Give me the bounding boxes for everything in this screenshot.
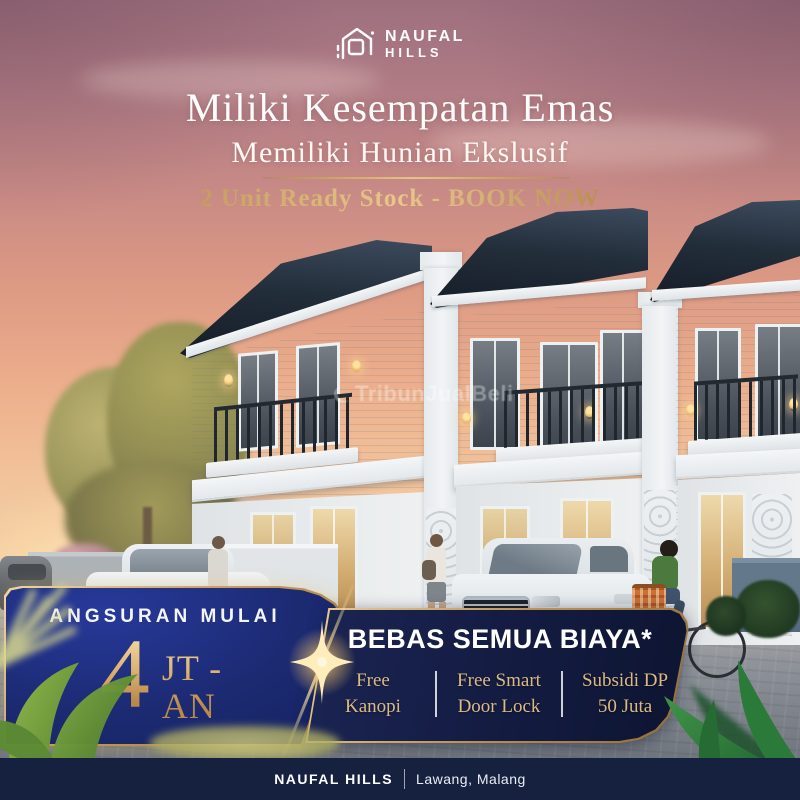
person-head: [212, 536, 225, 549]
house-logo-icon: [335, 24, 375, 64]
poster: TribunJualBeli NAUFAL HILLS Miliki Kesem…: [0, 0, 800, 800]
promo-feature-door-lock: Free Smart Door Lock: [443, 668, 555, 719]
shoulder-bag: [422, 560, 436, 580]
gold-divider-line: [263, 177, 569, 179]
feature-line: Door Lock: [443, 694, 555, 720]
person-body: [208, 549, 228, 589]
brand-name-line1: NAUFAL: [385, 28, 465, 46]
footer-bar: NAUFAL HILLS Lawang, Malang: [0, 758, 800, 800]
blurred-frond: [150, 726, 340, 760]
feature-line: Free Smart: [443, 668, 555, 694]
brand-logo-text: NAUFAL HILLS: [385, 28, 465, 60]
availability-ribbon: 2 Unit Ready Stock - BOOK NOW: [0, 185, 800, 213]
footer-location: Lawang, Malang: [416, 771, 526, 787]
footer-brand: NAUFAL HILLS: [274, 771, 393, 787]
wall-lamp: [352, 360, 361, 373]
brand-logo: NAUFAL HILLS: [0, 24, 800, 64]
person-head: [430, 534, 443, 547]
wall-lamp: [462, 412, 471, 425]
subheadline: Memiliki Hunian Ekslusif: [0, 136, 800, 170]
feature-divider: [561, 671, 563, 717]
photo-watermark: TribunJualBeli: [334, 381, 514, 407]
bush: [706, 596, 746, 636]
suv-headlight: [532, 596, 560, 607]
suv-windshield: [489, 544, 583, 574]
brand-name-line2: HILLS: [385, 46, 465, 60]
watermark-text: TribunJualBeli: [355, 381, 514, 407]
headline: Miliki Kesempatan Emas: [0, 84, 800, 131]
person-shorts: [427, 582, 446, 602]
footer-separator: [404, 769, 405, 789]
wall-lamp: [224, 374, 233, 387]
bush: [736, 580, 800, 638]
feature-divider: [435, 671, 437, 717]
watermark-crescent-icon: [334, 386, 351, 403]
